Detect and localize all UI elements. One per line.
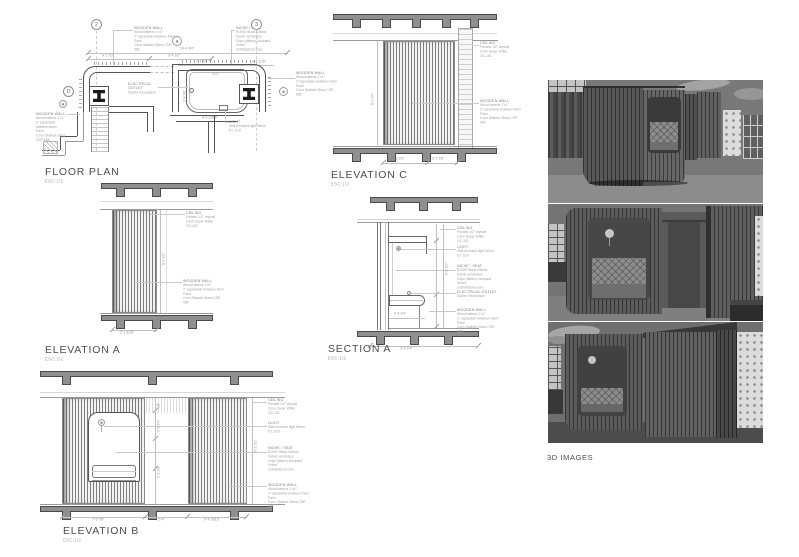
render-image-1 bbox=[548, 80, 763, 203]
light-stem bbox=[609, 238, 610, 246]
dim-segment: 7'-4 5/8" bbox=[196, 60, 208, 64]
note-light: LIGHTWall mounted light fixture EY 15.8 bbox=[457, 245, 500, 258]
dim-height: 8'-2 1/2" bbox=[371, 93, 375, 105]
niche-elevation bbox=[88, 412, 140, 482]
dim-overall: 14'-4 3/4" bbox=[180, 47, 194, 51]
note-ceiling: CEILINGPainted 1/2" drywall Color Super … bbox=[186, 211, 229, 228]
note-wooden-wall: WOODEN WALLWood battens 1"x1" 2" separat… bbox=[457, 308, 500, 334]
render-image-2 bbox=[548, 204, 763, 321]
note-ceiling: CEILINGPainted 1/2" drywall Color Super … bbox=[268, 398, 311, 415]
note-light: LIGHTWall mounted light fixture EY 15.8 bbox=[229, 120, 272, 133]
renders-title: 3D IMAGES bbox=[547, 453, 593, 462]
curtain bbox=[548, 92, 584, 158]
dim-bottom: 5'-4 15/16" bbox=[204, 518, 220, 522]
volume-side bbox=[685, 94, 697, 160]
seat-label: seat bbox=[212, 72, 218, 76]
door-lintel bbox=[662, 220, 706, 222]
dim-mid: 10" bbox=[157, 403, 161, 408]
detail-bubble-d: D bbox=[63, 86, 74, 97]
wall-light bbox=[605, 229, 614, 238]
grid-bubble-3: 3 bbox=[251, 19, 262, 30]
cushion bbox=[581, 388, 623, 404]
ceiling-cove bbox=[734, 88, 763, 100]
wallpaper-panel bbox=[723, 110, 741, 156]
volume-right-face bbox=[716, 330, 737, 438]
door-recess bbox=[668, 222, 700, 308]
picture-frames bbox=[743, 115, 763, 159]
dim-bottom: 3'-2 7/8" bbox=[432, 157, 444, 161]
note-wooden-wall: WOODEN WALLWood battens 1"x1" 2" separat… bbox=[296, 71, 339, 97]
window bbox=[548, 224, 564, 266]
render-image-3 bbox=[548, 322, 763, 443]
dim-height: 8'-2 1/2" bbox=[254, 440, 258, 452]
floor-shadow bbox=[588, 180, 688, 186]
wallpaper-wall bbox=[737, 332, 763, 428]
steel-column-symbol bbox=[89, 86, 109, 106]
volume-front bbox=[697, 92, 721, 158]
dim-bottom: 2'-4" bbox=[158, 518, 165, 522]
note-wooden-wall: WOODEN WALLWood battens 1"x1" 2" separat… bbox=[134, 26, 177, 52]
dim-bottom: 3'-6 1/4" bbox=[400, 347, 412, 351]
note-niche-seat: NICHE / SEATROMO Black Edition Fabric up… bbox=[268, 446, 311, 472]
wall-light bbox=[98, 419, 105, 426]
dim-niche-width: 6'-4 13/16" bbox=[202, 116, 218, 120]
dim-niche-depth: 2'-8 7/8" bbox=[183, 90, 187, 102]
note-wooden-wall: WOODEN WALLWood battens 1"x1" 2" separat… bbox=[268, 483, 311, 509]
light-symbol bbox=[59, 100, 67, 108]
seat-base bbox=[592, 284, 646, 298]
cushion bbox=[650, 122, 678, 142]
drawing-sheet: 2 3 D 14'-4 3/4" 4'-2 1/2" 5'-4 1/2" 7'-… bbox=[0, 0, 799, 557]
steel-column-symbol bbox=[239, 84, 259, 104]
furniture-silhouette bbox=[548, 390, 563, 414]
dim-bottom: 5'-6 1/2" bbox=[392, 157, 404, 161]
volume-edge bbox=[706, 206, 711, 318]
note-ceiling: CEILINGPainted 1/2" drywall Color Super … bbox=[480, 41, 523, 58]
dim-height: 8'-2 1/2" bbox=[162, 253, 166, 265]
seat-base bbox=[581, 404, 623, 412]
note-electrical-outlet: ELECTRICAL OUTLETDuplex Receptacle bbox=[128, 82, 158, 95]
note-wooden-wall: WOODEN WALLWood battens 1"x1" 2" separat… bbox=[36, 112, 68, 142]
light-symbol bbox=[396, 246, 401, 251]
furniture-silhouette bbox=[548, 262, 566, 282]
note-light: LIGHTWall mounted light fixture EY 15.8 bbox=[268, 421, 311, 434]
dim-segment: 5'-4 1/2" bbox=[168, 54, 180, 58]
dim-inner: 2'-4 1/4" bbox=[394, 312, 406, 316]
dim-segment: 4'-2 1/16" bbox=[252, 60, 266, 64]
booth-side bbox=[583, 86, 643, 186]
dim-segment: 4'-2 1/2" bbox=[102, 54, 114, 58]
note-wooden-wall: WOODEN WALLWood battens 1"x1" 2" separat… bbox=[480, 99, 523, 125]
dim-mid: 1'-2 1/8" bbox=[157, 466, 161, 478]
booth-top-edge bbox=[583, 86, 685, 88]
dim-bottom: 7'-6 7/8" bbox=[92, 518, 104, 522]
light-symbol bbox=[279, 87, 288, 96]
wall-light bbox=[588, 356, 596, 364]
cushion bbox=[592, 258, 646, 284]
note-ceiling: CEILINGPainted 1/2" drywall Color Super … bbox=[457, 226, 500, 243]
dim-height: 8'-2 1/2" bbox=[445, 263, 449, 275]
note-wooden-wall: WOODEN WALLWood battens 1"x1" 2" separat… bbox=[183, 279, 226, 305]
grid-bubble-2: 2 bbox=[91, 19, 102, 30]
table-top bbox=[730, 300, 763, 305]
note-electrical-outlet: ELECTRICAL OUTLETDuplex Receptacle bbox=[457, 290, 500, 299]
light-symbol bbox=[172, 36, 182, 46]
note-niche-seat: NICHE / SEATROMO Black Edition Fabric up… bbox=[457, 264, 500, 290]
window bbox=[548, 346, 561, 390]
wallpaper-sliver bbox=[755, 216, 763, 296]
dim-bottom: 3'-1 5/16" bbox=[120, 331, 134, 335]
seat-front bbox=[650, 142, 678, 150]
